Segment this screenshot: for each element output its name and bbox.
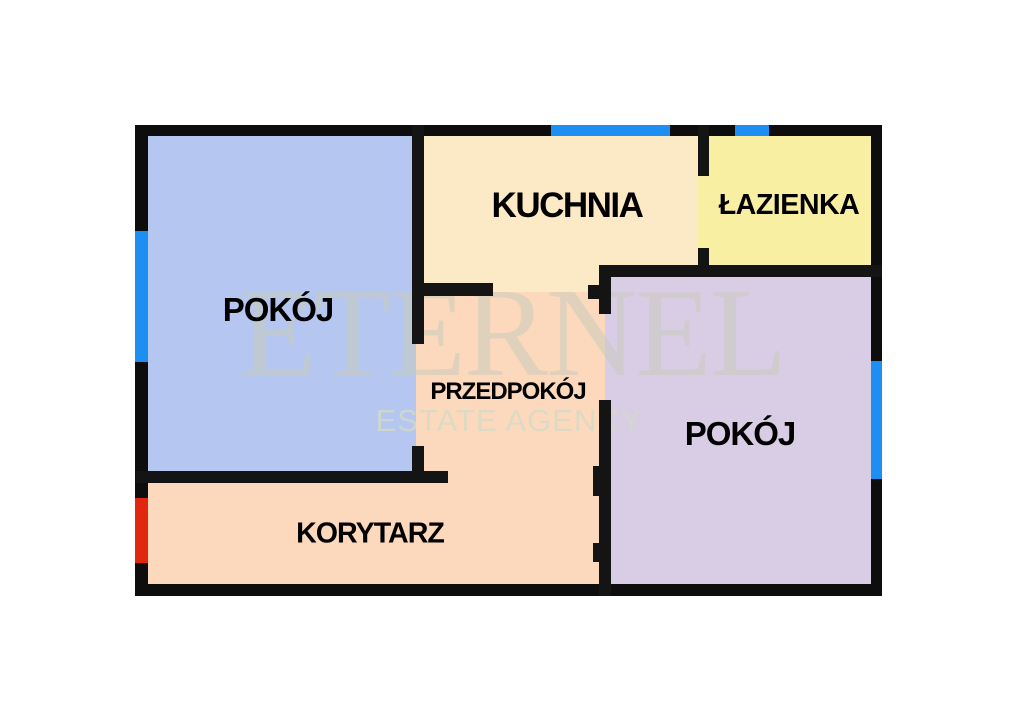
svg-text:ŁAZIENKA: ŁAZIENKA [719,189,860,221]
svg-text:POKÓJ: POKÓJ [223,291,334,328]
svg-text:KUCHNIA: KUCHNIA [492,186,644,225]
svg-text:POKÓJ: POKÓJ [685,415,796,452]
svg-text:KORYTARZ: KORYTARZ [296,518,444,550]
svg-text:PRZEDPOKÓJ: PRZEDPOKÓJ [430,377,585,405]
